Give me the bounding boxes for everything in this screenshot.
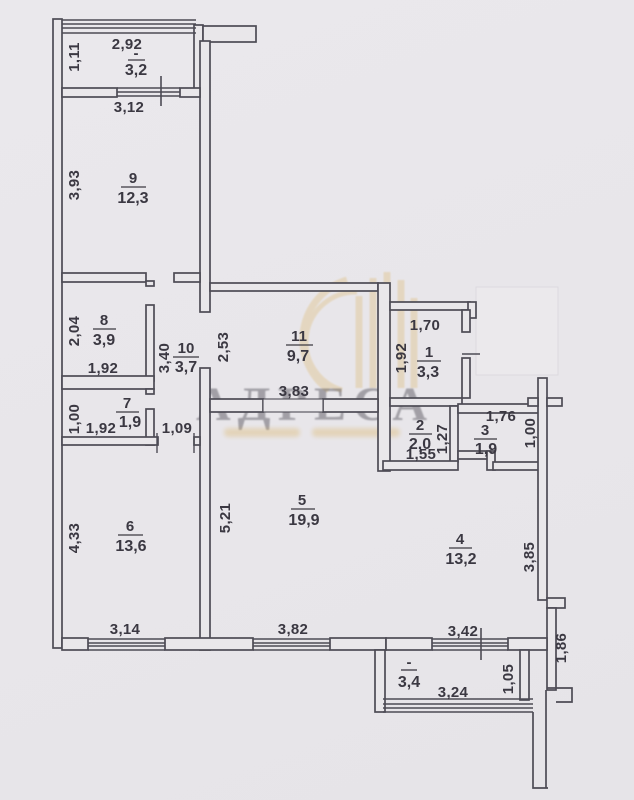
balcony-top-dim-depth: 1,11: [66, 42, 83, 72]
room-9-area: 12,3: [117, 190, 148, 207]
room-8-dim-left: 2,04: [66, 315, 83, 346]
room-5-dim-bottom: 3,82: [278, 621, 308, 638]
room-8-labels: 8 3,9 2,04 1,92: [66, 312, 118, 377]
room-7-number: 7: [123, 395, 131, 412]
room-5-number: 5: [298, 492, 306, 509]
balcony-bottom-dim-depth: 1,05: [500, 664, 517, 694]
room-3-labels: 1,76 3 1,9 1,00: [474, 408, 539, 458]
room-6-dim-left: 4,33: [66, 523, 83, 553]
room-11-area: 9,7: [287, 348, 309, 365]
room-7-dim-left: 1,00: [66, 404, 83, 434]
room-10-area: 3,7: [175, 359, 197, 376]
window-room5: [253, 639, 330, 650]
balcony-bottom-labels: - 3,4 3,24 1,05: [398, 654, 517, 701]
balcony-bottom-area: 3,4: [398, 674, 420, 691]
room-11-dim-bottom: 3,83: [279, 383, 309, 400]
room-9-dim-left: 3,93: [66, 170, 83, 200]
room-11-dim-left: 2,53: [215, 332, 232, 362]
room-3-dim-top: 1,76: [486, 408, 516, 425]
room-3-area: 1,9: [475, 441, 497, 458]
room-7-area: 1,9: [119, 414, 141, 431]
faint-stamp-area: [476, 287, 558, 375]
outer-contour-lines: [533, 688, 572, 788]
balcony-bottom-dim-width: 3,24: [438, 684, 469, 701]
balcony-top-area: 3,2: [125, 62, 147, 79]
room-7-labels: 7 1,9 1,00 1,92: [66, 395, 141, 437]
room-4-dim-bottom: 3,42: [448, 623, 478, 640]
floor-plan: АДРЕСА: [0, 0, 634, 800]
room-2-dim-bottom: 1,55: [406, 446, 436, 463]
window-balcony-top: [62, 20, 196, 33]
room-9-labels: 3,12 3,93 9 12,3: [66, 99, 149, 207]
room-1-area: 3,3: [417, 364, 439, 381]
balcony-top-labels: 2,92 1,11 - 3,2: [66, 36, 147, 79]
room-1-dim-left: 1,92: [393, 343, 410, 373]
window-room6: [88, 639, 165, 650]
room-6-labels: 6 13,6 4,33 3,14: [66, 518, 147, 638]
room-3-dim-right: 1,00: [522, 418, 539, 448]
room-10-number: 10: [178, 340, 195, 357]
outside-right-dim: 1,86: [553, 633, 570, 663]
room-8-area: 3,9: [93, 332, 115, 349]
room-9-number: 9: [129, 170, 137, 187]
balcony-bottom-number: -: [407, 654, 412, 671]
room-5-dim-left: 5,21: [217, 503, 234, 533]
room-9-dim-top: 3,12: [114, 99, 144, 116]
room-10-labels: 10 3,7 3,40 1,09: [156, 340, 199, 437]
room-4-area: 13,2: [445, 551, 476, 568]
room-6-dim-bottom: 3,14: [110, 621, 141, 638]
room-5-labels: 5 19,9 5,21 3,82: [217, 492, 320, 638]
room-10-dim-side: 3,40: [156, 343, 173, 373]
room-11-number: 11: [291, 328, 307, 345]
room-6-area: 13,6: [115, 538, 146, 555]
room-2-dim-right: 1,27: [434, 424, 451, 454]
scanned-floor-plan-page: АДРЕСА: [0, 0, 634, 800]
room-4-labels: 4 13,2 3,85 3,42: [445, 531, 538, 640]
room-1-number: 1: [425, 344, 433, 361]
room-3-number: 3: [481, 422, 489, 439]
room-4-dim-right: 3,85: [521, 542, 538, 572]
room-8-number: 8: [100, 312, 108, 329]
room-4-number: 4: [456, 531, 465, 548]
room-2-number: 2: [416, 417, 424, 434]
room-7-dim-bottom: 1,92: [86, 420, 116, 437]
room-10-dim-bottom: 1,09: [162, 420, 192, 437]
room-8-dim-bottom: 1,92: [88, 360, 118, 377]
room-6-number: 6: [126, 518, 134, 535]
room-1-dim-top: 1,70: [410, 317, 440, 334]
room-5-area: 19,9: [288, 512, 319, 529]
